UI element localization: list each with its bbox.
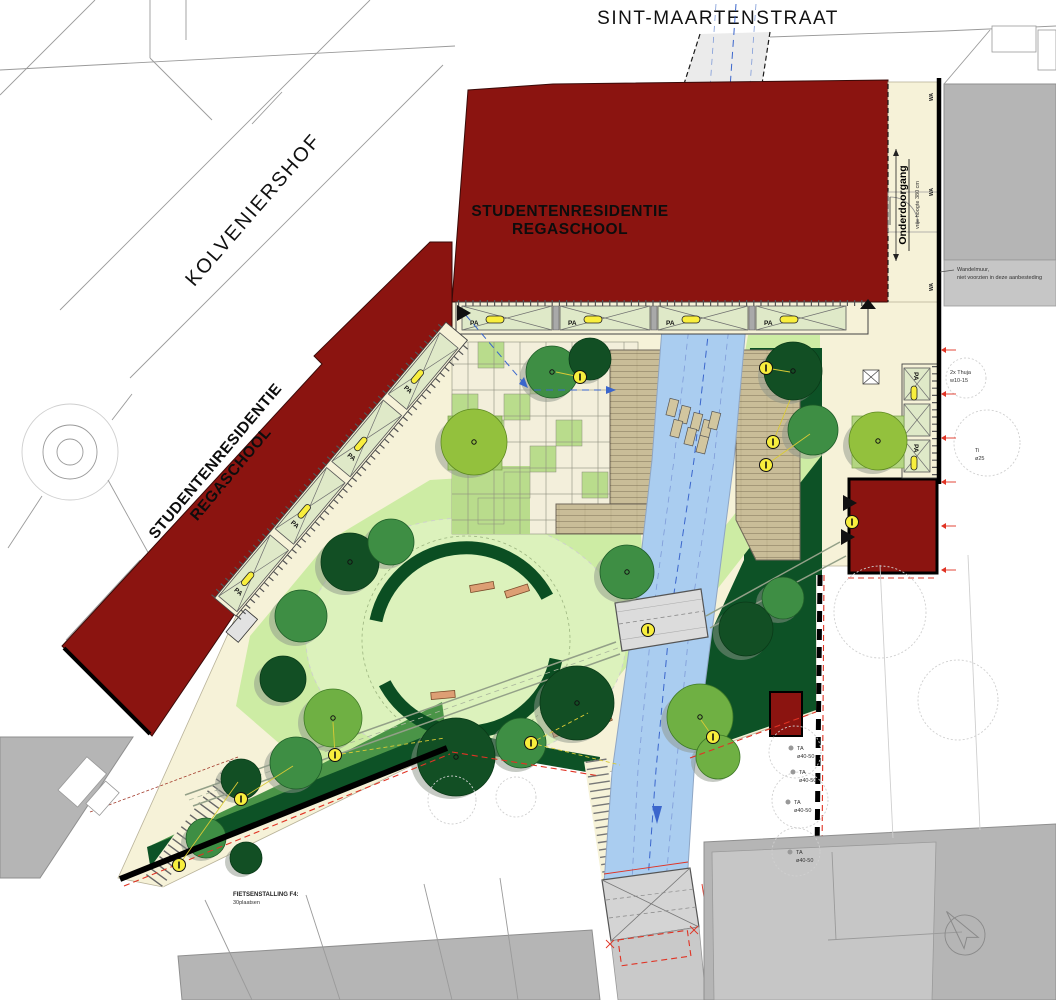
ti-label-line2: ø25 bbox=[975, 456, 984, 462]
tree bbox=[762, 577, 804, 619]
parking-marker bbox=[682, 316, 700, 323]
thuja-label-line1: 2x Thuja bbox=[950, 370, 972, 376]
tree bbox=[441, 409, 507, 475]
wall-note-line1: Wandelmuur, bbox=[957, 267, 990, 273]
parking-marker bbox=[584, 316, 602, 323]
site-plan-sheet: SINT-MAARTENSTRAAT KOLVENIERSHOF bbox=[0, 0, 1056, 1000]
utility-box-icon bbox=[863, 370, 879, 384]
pa-label: PA bbox=[912, 444, 919, 453]
boundary-wall-dashed bbox=[817, 575, 820, 858]
tree bbox=[849, 412, 907, 470]
building-top bbox=[452, 80, 888, 302]
culvert bbox=[602, 862, 708, 1000]
building-top-label-line2: REGASCHOOL bbox=[512, 221, 628, 238]
neighbor-outline bbox=[992, 26, 1036, 52]
tree bbox=[764, 342, 822, 400]
svg-text:ø40-50: ø40-50 bbox=[799, 778, 816, 784]
svg-text:TA: TA bbox=[797, 746, 804, 752]
building-red-box bbox=[770, 692, 802, 736]
ta-marker: TA ø40-50 bbox=[786, 800, 812, 815]
svg-text:TA: TA bbox=[799, 770, 806, 776]
street-label-sint-maartenstraat: SINT-MAARTENSTRAAT bbox=[597, 8, 839, 29]
neighbor-block-se-inner bbox=[712, 842, 936, 1000]
bike-parking-label-line2: 30plaatsen bbox=[233, 900, 260, 906]
neighbor-block-sw bbox=[0, 737, 133, 878]
tree bbox=[230, 842, 262, 874]
pa-label: PA bbox=[666, 320, 675, 327]
tree bbox=[600, 545, 654, 599]
svg-text:ø40-50: ø40-50 bbox=[796, 858, 813, 864]
bike-parking-label-line1: FIETSENSTALLING F4: bbox=[233, 892, 299, 898]
pa-label: PA bbox=[912, 372, 919, 381]
building-small-east bbox=[849, 479, 937, 573]
parking-marker bbox=[911, 456, 917, 470]
passage: Onderdoorgang vrije hoogte 380 cm WA WA … bbox=[888, 82, 938, 302]
tree bbox=[719, 602, 773, 656]
tree bbox=[275, 590, 327, 642]
tree bbox=[540, 666, 614, 740]
neighbor-outline bbox=[1038, 30, 1056, 70]
site-plan-drawing: SINT-MAARTENSTRAAT KOLVENIERSHOF bbox=[0, 0, 1056, 1000]
passage-sublabel: vrije hoogte 380 cm bbox=[915, 181, 921, 229]
parking-row-east: PA PA bbox=[902, 364, 940, 478]
parking-marker bbox=[911, 386, 917, 400]
tree bbox=[304, 689, 362, 747]
svg-text:ø40-50: ø40-50 bbox=[794, 808, 811, 814]
pa-label: PA bbox=[568, 320, 577, 327]
pa-label: PA bbox=[764, 320, 773, 327]
tree bbox=[260, 656, 306, 702]
parking-marker bbox=[486, 316, 504, 323]
tree bbox=[270, 737, 322, 789]
parking-row-north: PA PA PA PA bbox=[456, 302, 868, 334]
building-top-label-line1: STUDENTENRESIDENTIE bbox=[471, 203, 668, 220]
wa-label: WA bbox=[929, 283, 935, 291]
street-label-kolveniershof: KOLVENIERSHOF bbox=[181, 129, 325, 290]
wa-label: WA bbox=[929, 93, 935, 101]
ta-marker: TA ø40-50 bbox=[789, 746, 815, 761]
parking-marker bbox=[780, 316, 798, 323]
ti-label-line1: Ti bbox=[975, 448, 979, 454]
wall-note-line2: niet voorzien in deze aanbesteding bbox=[957, 275, 1042, 281]
svg-text:TA: TA bbox=[794, 800, 801, 806]
svg-text:TA: TA bbox=[796, 850, 803, 856]
neighbor-block-ne bbox=[944, 84, 1056, 260]
thuja-label-line2: w10-15 bbox=[949, 378, 968, 384]
passage-label: Onderdoorgang bbox=[897, 165, 909, 244]
svg-text:ø40-50: ø40-50 bbox=[797, 754, 814, 760]
neighbor-band-south bbox=[178, 930, 600, 1000]
tree bbox=[368, 519, 414, 565]
street-crossing-band bbox=[684, 32, 770, 84]
tree bbox=[788, 405, 838, 455]
wa-label: WA bbox=[929, 188, 935, 196]
